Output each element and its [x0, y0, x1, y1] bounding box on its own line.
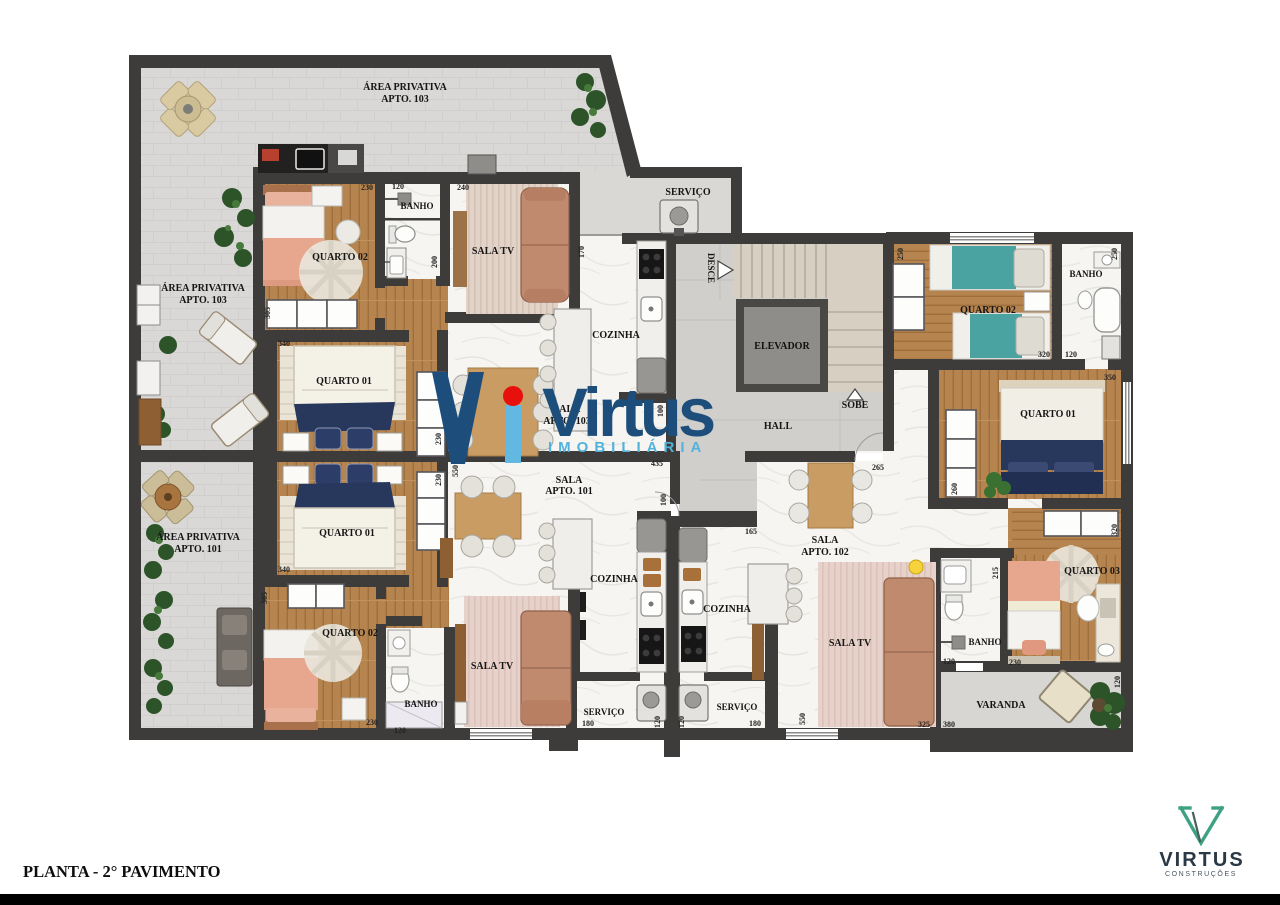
svg-text:COZINHA: COZINHA — [703, 604, 752, 615]
svg-text:SALA TV: SALA TV — [829, 638, 872, 649]
svg-text:120: 120 — [943, 657, 955, 666]
svg-text:APTO. 101: APTO. 101 — [174, 544, 222, 555]
svg-text:QUARTO 01: QUARTO 01 — [316, 376, 372, 387]
svg-text:230: 230 — [366, 718, 378, 727]
svg-text:DESCE: DESCE — [706, 253, 716, 283]
svg-text:340: 340 — [278, 339, 290, 348]
svg-text:260: 260 — [950, 483, 959, 495]
svg-text:230: 230 — [434, 433, 443, 445]
svg-text:QUARTO 02: QUARTO 02 — [322, 628, 378, 639]
svg-text:SALA TV: SALA TV — [471, 661, 514, 672]
svg-text:230: 230 — [434, 474, 443, 486]
svg-text:ÁREA PRIVATIVA: ÁREA PRIVATIVA — [363, 81, 447, 93]
svg-text:305: 305 — [260, 592, 269, 604]
svg-text:COZINHA: COZINHA — [592, 330, 641, 341]
svg-text:340: 340 — [278, 565, 290, 574]
svg-text:215: 215 — [991, 567, 1000, 579]
svg-text:200: 200 — [430, 256, 439, 268]
svg-text:SERVIÇO: SERVIÇO — [584, 707, 625, 717]
svg-text:240: 240 — [457, 183, 469, 192]
svg-text:SERVIÇO: SERVIÇO — [717, 702, 758, 712]
svg-text:ÁREA PRIVATIVA: ÁREA PRIVATIVA — [156, 531, 240, 543]
svg-text:BANHO: BANHO — [968, 637, 1001, 647]
svg-text:435: 435 — [651, 459, 663, 468]
svg-text:HALL: HALL — [764, 421, 793, 432]
svg-text:170: 170 — [577, 246, 586, 258]
svg-text:APTO. 102: APTO. 102 — [801, 547, 849, 558]
svg-text:APTO. 103: APTO. 103 — [381, 94, 429, 105]
svg-text:QUARTO 01: QUARTO 01 — [319, 528, 375, 539]
svg-text:ÁREA PRIVATIVA: ÁREA PRIVATIVA — [161, 282, 245, 294]
svg-text:320: 320 — [1110, 524, 1119, 536]
svg-text:180: 180 — [582, 719, 594, 728]
svg-text:320: 320 — [1038, 350, 1050, 359]
svg-text:120: 120 — [677, 716, 686, 728]
svg-text:305: 305 — [263, 307, 272, 319]
svg-text:325: 325 — [918, 720, 930, 729]
svg-text:250: 250 — [1110, 248, 1119, 260]
svg-text:350: 350 — [1104, 373, 1116, 382]
svg-text:120: 120 — [392, 182, 404, 191]
svg-text:BANHO: BANHO — [1069, 269, 1102, 279]
svg-text:QUARTO 03: QUARTO 03 — [1064, 566, 1120, 577]
svg-text:IMOBILIÁRIA: IMOBILIÁRIA — [548, 439, 707, 456]
svg-text:PLANTA - 2° PAVIMENTO: PLANTA - 2° PAVIMENTO — [23, 862, 221, 881]
svg-text:120: 120 — [394, 726, 406, 735]
svg-text:SALA: SALA — [812, 535, 839, 546]
svg-text:BANHO: BANHO — [404, 699, 437, 709]
svg-text:120: 120 — [1113, 676, 1122, 688]
svg-text:SERVIÇO: SERVIÇO — [665, 187, 710, 198]
svg-text:SOBE: SOBE — [842, 400, 869, 411]
svg-text:QUARTO 01: QUARTO 01 — [1020, 409, 1076, 420]
svg-text:550: 550 — [798, 713, 807, 725]
svg-text:SALA: SALA — [556, 475, 583, 486]
svg-text:230: 230 — [1009, 658, 1021, 667]
svg-text:APTO. 101: APTO. 101 — [545, 486, 593, 497]
svg-text:COZINHA: COZINHA — [590, 574, 639, 585]
svg-text:QUARTO 02: QUARTO 02 — [312, 252, 368, 263]
svg-text:APTO. 103: APTO. 103 — [179, 295, 227, 306]
svg-text:265: 265 — [872, 463, 884, 472]
svg-text:180: 180 — [749, 719, 761, 728]
svg-text:120: 120 — [653, 716, 662, 728]
svg-text:VIRTUS: VIRTUS — [1159, 849, 1244, 871]
svg-text:380: 380 — [943, 720, 955, 729]
svg-text:SALA TV: SALA TV — [472, 246, 515, 257]
svg-text:QUARTO 02: QUARTO 02 — [960, 305, 1016, 316]
svg-text:120: 120 — [1065, 350, 1077, 359]
svg-text:250: 250 — [896, 248, 905, 260]
svg-text:VARANDA: VARANDA — [976, 700, 1026, 711]
svg-text:550: 550 — [451, 465, 460, 477]
svg-text:BANHO: BANHO — [400, 201, 433, 211]
svg-text:ELEVADOR: ELEVADOR — [754, 341, 810, 352]
svg-text:100: 100 — [659, 494, 668, 506]
svg-text:CONSTRUÇÕES: CONSTRUÇÕES — [1165, 869, 1237, 878]
svg-text:165: 165 — [745, 527, 757, 536]
svg-text:230: 230 — [361, 183, 373, 192]
